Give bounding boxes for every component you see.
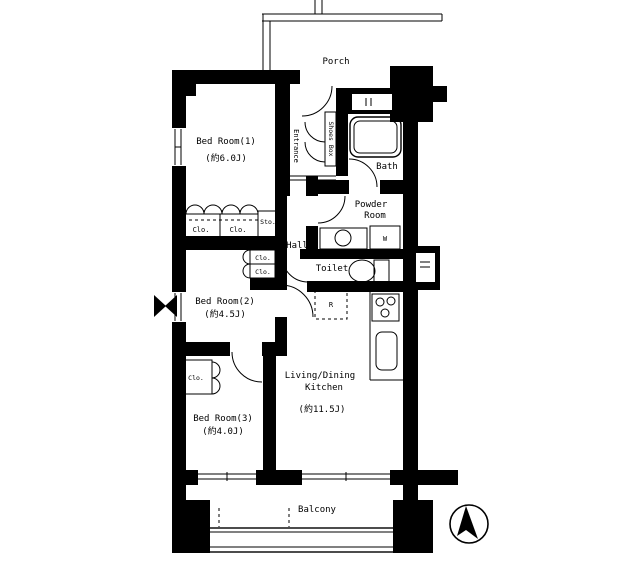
label-bath: Bath bbox=[376, 162, 398, 172]
floorplan-svg: Porch bbox=[0, 0, 640, 569]
label-washer: W bbox=[383, 235, 388, 243]
kitchen-sink-icon bbox=[376, 332, 397, 370]
window-sliding-bedroom3-icon bbox=[198, 472, 256, 481]
label-powder-line2: Room bbox=[364, 211, 386, 221]
vanity-sink-icon bbox=[320, 228, 367, 249]
label-toilet: Toilet bbox=[316, 264, 349, 274]
label-bedroom1-size: (約6.0J) bbox=[205, 152, 247, 164]
floorplan-page: Porch bbox=[0, 0, 640, 569]
label-clo-5: Clo. bbox=[188, 374, 204, 382]
label-powder-line1: Powder bbox=[355, 200, 388, 210]
label-sto: Sto. bbox=[260, 218, 276, 226]
room-bedroom3: Bed Room(3) (約4.0J) bbox=[193, 414, 253, 437]
label-bedroom2-size: (約4.5J) bbox=[204, 308, 246, 320]
label-bedroom2-name: Bed Room(2) bbox=[195, 297, 255, 307]
label-shoes-box: Shoes Box bbox=[327, 121, 335, 156]
compass-icon bbox=[450, 505, 488, 543]
window-sliding-ldk-icon bbox=[302, 472, 390, 481]
label-ldk-line1: Living/Dining bbox=[285, 371, 355, 381]
meter-box-icon bbox=[352, 94, 392, 110]
room-ldk: Living/Dining Kitchen (約11.5J) bbox=[285, 371, 355, 415]
balcony-railing bbox=[208, 528, 394, 552]
closet-bifold-doors-icon bbox=[186, 205, 258, 214]
label-entrance: Entrance bbox=[292, 129, 300, 163]
balcony-divider-dashes bbox=[219, 508, 289, 527]
bedroom3-door-arc bbox=[232, 352, 262, 382]
label-bedroom1-name: Bed Room(1) bbox=[196, 137, 256, 147]
shoesbox-door-arc-1 bbox=[305, 122, 325, 142]
bath-door-arc bbox=[349, 159, 377, 187]
label-bedroom3-size: (約4.0J) bbox=[202, 425, 244, 437]
label-fridge: R bbox=[329, 301, 334, 309]
window-bowtie-icon bbox=[154, 295, 177, 317]
label-ldk-size: (約11.5J) bbox=[299, 403, 346, 415]
shoesbox-door-arc-2 bbox=[305, 142, 325, 162]
toilet-bowl-icon bbox=[349, 260, 389, 283]
label-clo-1: Clo. bbox=[193, 226, 210, 234]
powder-door-arc bbox=[318, 196, 345, 223]
label-balcony: Balcony bbox=[298, 505, 337, 515]
stove-icon bbox=[372, 294, 399, 321]
room-bedroom2: Bed Room(2) (約4.5J) bbox=[195, 297, 255, 320]
label-clo-2: Clo. bbox=[230, 226, 247, 234]
pipe-space-icon bbox=[416, 253, 435, 282]
bathtub-icon bbox=[350, 117, 401, 157]
room-bedroom1: Bed Room(1) (約6.0J) bbox=[196, 137, 256, 164]
label-porch: Porch bbox=[322, 57, 349, 67]
label-bedroom3-name: Bed Room(3) bbox=[193, 414, 253, 424]
label-hall: Hall bbox=[286, 241, 308, 251]
porch-outline bbox=[262, 0, 442, 74]
label-clo-4: Clo. bbox=[255, 268, 271, 276]
label-ldk-line2: Kitchen bbox=[305, 383, 343, 393]
label-clo-3: Clo. bbox=[255, 254, 271, 262]
kitchen-counter bbox=[370, 292, 403, 380]
